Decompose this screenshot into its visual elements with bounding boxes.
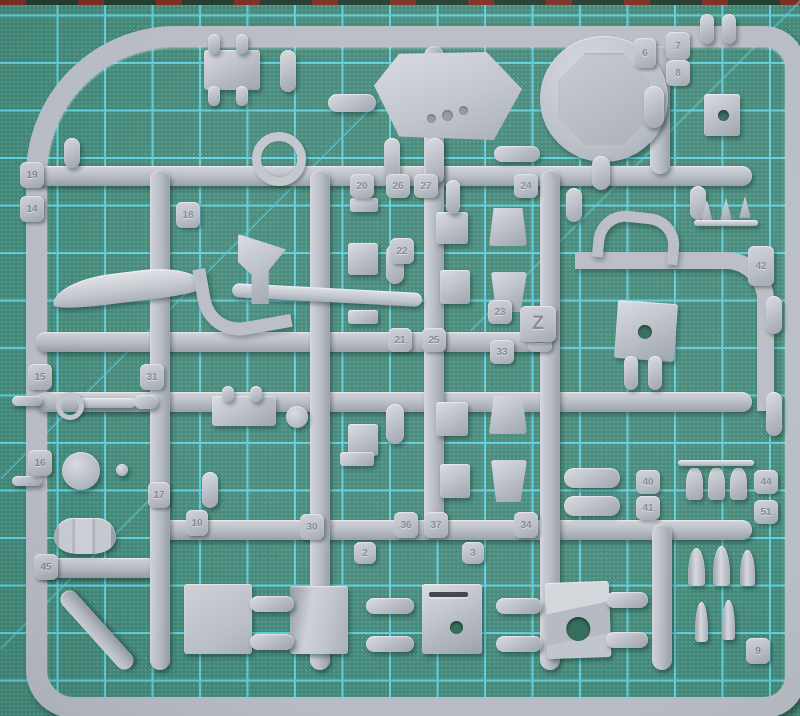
cutting-mat-edge [0,0,800,5]
part-bottle [708,468,725,500]
part-number-label: 40 [642,477,653,488]
part-ring-part [252,132,306,186]
part-number-tab: 17 [148,482,170,508]
part-number-label: 34 [520,520,531,531]
part-number-label: 19 [26,170,37,181]
part-wedge [489,208,527,246]
part-number-label: 42 [755,261,766,272]
part-fuel-drum [54,518,116,554]
part-number-tab: 45 [34,554,58,580]
part-hull-panel [184,584,252,654]
part-gate [496,636,542,652]
part-number-tab: 33 [490,340,514,364]
part-block [436,402,468,436]
part-number-tab: 25 [422,328,446,352]
part-stem [592,156,610,190]
part-number-label: 9 [755,646,761,657]
part-number-label: 15 [34,372,45,383]
part-number-label: 26 [392,181,403,192]
sprue-runner [36,332,556,352]
part-number-tab: 44 [754,470,778,494]
part-flat-bar [348,310,378,324]
part-number-label: 27 [420,181,431,192]
part-machine-gun-barrel [78,398,136,408]
part-gate [250,634,294,650]
part-bottle [730,468,747,500]
part-number-tab: 14 [20,196,44,222]
part-block [348,243,378,275]
sprue-runner [150,170,170,670]
part-cylinder [328,94,376,112]
part-number-label: 33 [496,347,507,358]
part-number-tab: 6 [634,38,656,68]
part-number-tab: 21 [388,328,412,352]
part-number-tab: Z [520,306,556,342]
part-number-label: 10 [191,518,202,529]
part-number-label: 22 [396,246,407,257]
part-number-tab: 8 [666,60,690,86]
part-number-tab: 18 [176,202,200,228]
part-ring-sight [56,392,84,420]
part-number-label: 23 [494,307,505,318]
part-periscope-dot [427,114,436,123]
part-stem [386,404,404,444]
part-hole [566,617,591,642]
part-roller [564,496,620,516]
part-number-tab: 26 [386,174,410,198]
part-block [436,212,468,244]
part-angled-bracket [545,581,612,659]
part-number-tab: 20 [350,174,374,198]
part-number-label: 18 [182,210,193,221]
sprue-runner [652,524,672,670]
part-number-tab: 51 [754,500,778,524]
part-number-tab: 10 [186,510,208,536]
part-side-pin [12,396,42,406]
part-stem [64,138,80,168]
part-ball-knob [116,464,128,476]
part-gate [250,596,294,612]
part-periscope-dot [459,106,468,115]
part-number-label: 8 [675,68,681,79]
part-number-label: 21 [394,335,405,346]
part-number-label: Z [532,313,544,335]
part-peg [236,86,248,106]
part-side-pin [12,476,42,486]
part-hole [450,621,463,634]
part-peg [236,34,248,54]
part-gun-body [134,395,158,409]
part-number-tab: 34 [514,512,538,538]
part-roller [564,468,620,488]
part-small-wheel [286,406,308,428]
part-number-label: 24 [520,181,531,192]
part-gate [366,598,414,614]
part-block [440,464,470,498]
part-stem [202,472,218,508]
part-peg [222,386,234,402]
part-flat-bar [350,198,378,212]
part-number-tab: 9 [746,638,770,664]
panel-slot [429,592,467,597]
part-cylinder [280,50,296,92]
part-periscope-dot [442,110,453,121]
part-stem [648,356,662,390]
part-number-tab: 42 [748,246,774,286]
part-gate [606,632,648,648]
part-bottle [686,468,703,500]
part-equipment-box [212,396,276,426]
part-number-label: 44 [760,477,771,488]
part-bottle-rod [678,460,754,466]
part-number-tab: 19 [20,162,44,188]
part-number-tab: 3 [462,542,484,564]
part-stem [624,356,638,390]
part-number-label: 51 [760,507,771,518]
part-peg [722,14,736,44]
part-number-tab: 36 [394,512,418,538]
part-cone-rod [694,220,758,226]
part-number-tab: 23 [488,300,512,324]
part-equipment-box [204,50,260,90]
part-number-label: 36 [400,520,411,531]
part-number-label: 16 [34,458,45,469]
part-side-pill [766,392,782,436]
part-number-tab: 31 [140,364,164,390]
part-road-wheel [62,452,100,490]
part-number-label: 31 [146,372,157,383]
part-gate [496,598,542,614]
part-peg [700,14,714,44]
part-stem [566,188,582,222]
part-number-tab: 40 [636,470,660,494]
part-number-label: 20 [356,181,367,192]
part-number-label: 3 [470,548,476,559]
part-number-label: 7 [675,41,681,52]
part-number-tab: 15 [28,364,52,390]
part-number-tab: 24 [514,174,538,198]
part-number-label: 17 [153,490,164,501]
part-number-label: 45 [40,562,51,573]
part-number-label: 14 [26,204,37,215]
part-side-pill [766,296,782,334]
part-gate [606,592,648,608]
part-hole [718,110,729,121]
part-number-tab: 41 [636,496,660,520]
part-number-label: 30 [306,522,317,533]
part-number-tab: 16 [28,450,52,476]
part-flat-bar [340,452,374,466]
part-number-label: 6 [642,48,648,59]
part-stem [446,180,460,214]
part-number-tab: 2 [354,542,376,564]
part-hole [637,325,652,340]
part-wedge [489,396,527,434]
part-number-tab: 22 [390,238,414,264]
part-number-tab: 7 [666,32,690,60]
part-number-label: 41 [642,503,653,514]
part-peg [250,386,262,402]
part-block [440,270,470,304]
sprue-photo: 191418153116171045678202627242221252823Z… [0,0,800,716]
part-number-tab: 30 [300,514,324,540]
part-number-tab: 27 [414,174,438,198]
part-gun-mantlet [614,300,678,362]
part-peg [208,86,220,106]
part-stem [644,86,664,128]
part-curved-panel [290,586,348,654]
part-number-tab: 37 [424,512,448,538]
part-slotted-panel [422,584,482,654]
part-clamp-block [704,94,740,136]
part-number-label: 2 [362,548,368,559]
part-peg [208,34,220,54]
part-gate [366,636,414,652]
part-number-label: 25 [428,335,439,346]
part-number-label: 37 [430,520,441,531]
part-cylinder [494,146,540,162]
